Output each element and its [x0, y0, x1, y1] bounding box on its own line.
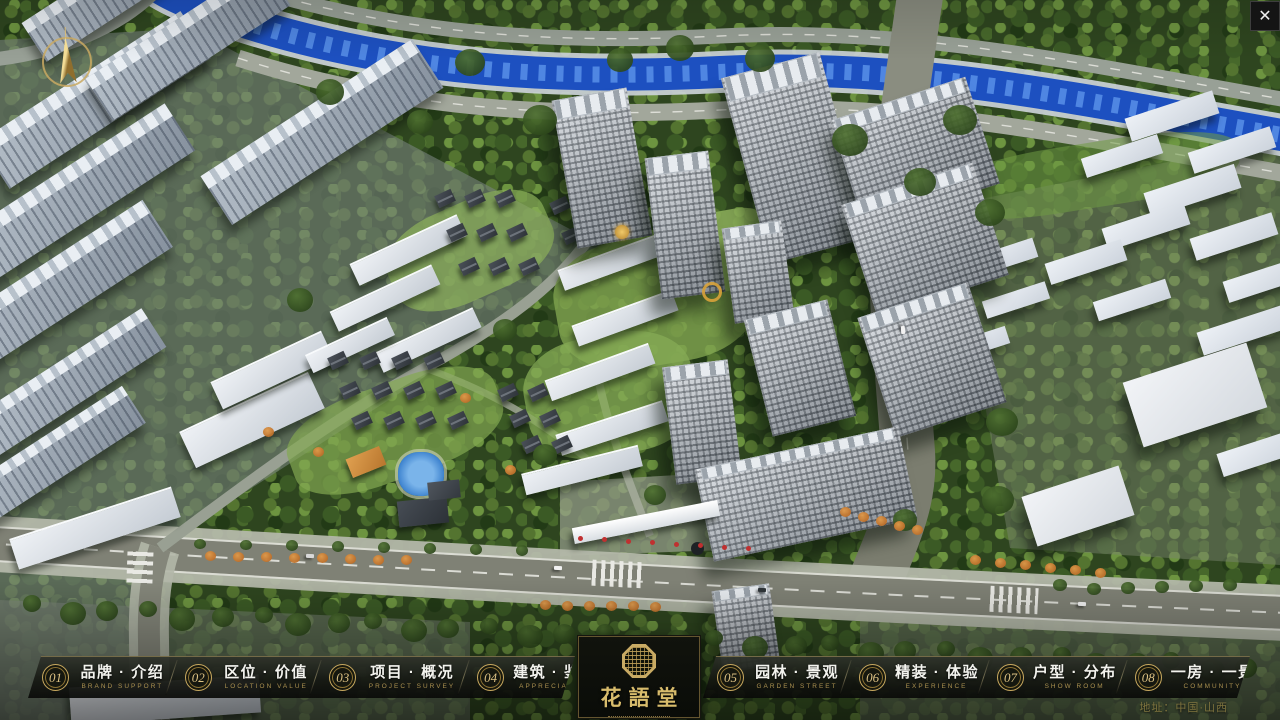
nav-label-garden: 园林 · 景观 [755, 664, 839, 681]
project-logo-panel[interactable]: 花語堂 [578, 636, 700, 718]
tb [785, 636, 807, 656]
detail [674, 542, 679, 547]
nav-badge-03: 03 [329, 664, 356, 691]
tb [205, 551, 216, 561]
tb [1223, 579, 1237, 592]
tb [970, 555, 981, 565]
detail [746, 546, 751, 551]
nav-badge-08: 08 [1135, 664, 1162, 691]
nav-badge-07: 07 [997, 664, 1024, 691]
car [306, 554, 314, 558]
tb [650, 602, 661, 612]
nav-badge-06: 06 [859, 664, 886, 691]
tb [584, 601, 595, 611]
nav-caption-brand: BRAND SUPPORT [82, 683, 164, 690]
nav-item-interior[interactable]: 06 精装 · 体验 EXPERIENCE [845, 657, 983, 698]
tb [424, 543, 436, 554]
nav-caption-room-view: COMMUNITY [1184, 683, 1242, 690]
tb [516, 545, 528, 556]
project-address: 地址：中国·山西 [1139, 699, 1228, 715]
detail [722, 545, 727, 550]
tb [666, 35, 694, 60]
tb [261, 552, 272, 562]
tb [505, 465, 516, 475]
compass-north-indicator [36, 31, 98, 93]
detail [578, 536, 583, 541]
tb [745, 45, 775, 72]
nav-label-floorplan: 户型 · 分布 [1033, 664, 1117, 681]
logo-caption-line [608, 716, 670, 717]
nav-num-06: 06 [866, 671, 879, 684]
nav-item-project[interactable]: 03 项目 · 概况 PROJECT SURVEY [315, 657, 463, 698]
detail [698, 543, 703, 548]
tb [523, 105, 557, 136]
tb [904, 168, 936, 197]
detail [702, 282, 722, 302]
tb [840, 507, 851, 517]
tb [1087, 583, 1101, 596]
tb [1095, 568, 1106, 578]
nav-label-brand: 品牌 · 介绍 [80, 664, 164, 681]
nav-num-07: 07 [1004, 671, 1017, 684]
tb [533, 444, 557, 466]
nav-caption-project: PROJECT SURVEY [369, 683, 455, 690]
nav-item-location[interactable]: 02 区位 · 价值 LOCATION VALUE [171, 657, 315, 698]
detail [427, 479, 461, 500]
tb [240, 540, 252, 551]
car [901, 326, 906, 334]
nav-num-08: 08 [1142, 671, 1155, 684]
detail [615, 225, 629, 239]
car [758, 588, 766, 592]
close-icon: ✕ [1258, 6, 1271, 26]
tb [328, 613, 350, 633]
tb [975, 199, 1005, 226]
xwalk [126, 549, 153, 584]
nav-item-room-view[interactable]: 08 一房 · 一景 COMMUNITY [1121, 657, 1259, 698]
nav-item-brand[interactable]: 01 品牌 · 介绍 BRAND SUPPORT [28, 657, 171, 698]
tb [562, 601, 573, 611]
nav-caption-garden: GARDEN STREET [757, 683, 838, 690]
nav-item-floorplan[interactable]: 07 户型 · 分布 SHOW ROOM [983, 657, 1121, 698]
tb [194, 539, 206, 550]
tb [894, 521, 905, 531]
nav-caption-floorplan: SHOW ROOM [1045, 683, 1105, 690]
nav-caption-interior: EXPERIENCE [906, 683, 968, 690]
nav-group-right: 05 园林 · 景观 GARDEN STREET 06 精装 · 体验 EXPE… [703, 656, 1250, 698]
car [1078, 602, 1086, 606]
xwalk [591, 560, 644, 589]
tb [470, 544, 482, 555]
nav-num-05: 05 [724, 671, 737, 684]
nav-label-project: 项目 · 概况 [370, 664, 454, 681]
nav-item-garden[interactable]: 05 园林 · 景观 GARDEN STREET [703, 657, 845, 698]
tb [313, 447, 324, 457]
tb [1020, 560, 1031, 570]
tb [644, 485, 666, 505]
tb [1121, 582, 1135, 595]
close-button[interactable]: ✕ [1250, 1, 1280, 31]
tb [606, 601, 617, 611]
logo-seal-icon [622, 644, 656, 678]
tb [401, 555, 412, 565]
tb [378, 542, 390, 553]
nav-num-04: 04 [484, 671, 497, 684]
tb [912, 525, 923, 535]
tb [1189, 580, 1203, 593]
nav-badge-04: 04 [477, 664, 504, 691]
tb [943, 105, 977, 136]
nav-num-03: 03 [336, 671, 349, 684]
nav-label-interior: 精装 · 体验 [895, 664, 979, 681]
tb [1070, 565, 1081, 575]
tb [1053, 579, 1067, 592]
nav-badge-02: 02 [185, 664, 212, 691]
tb [876, 516, 887, 526]
tb [233, 552, 244, 562]
nav-num-02: 02 [192, 671, 205, 684]
tb [345, 554, 356, 564]
tb [995, 558, 1006, 568]
nav-label-location: 区位 · 价值 [224, 664, 308, 681]
tb [96, 601, 118, 621]
detail [397, 496, 449, 527]
nav-badge-01: 01 [42, 664, 69, 691]
car [554, 566, 562, 570]
aerial-masterplan-viewport[interactable]: ✕ 01 品牌 · 介绍 BRAND SUPPORT 02 区位 · 价值 LO… [0, 0, 1280, 720]
tb [263, 427, 274, 437]
tb [628, 601, 639, 611]
tb [286, 540, 298, 551]
tb [982, 486, 1014, 515]
tb [316, 79, 344, 104]
tb [493, 319, 517, 341]
tb [858, 512, 869, 522]
detail [650, 540, 655, 545]
tb [332, 541, 344, 552]
xwalk [989, 586, 1038, 614]
nav-label-room-view: 一房 · 一景 [1171, 664, 1255, 681]
nav-num-01: 01 [49, 671, 62, 684]
project-logo-title: 花語堂 [601, 682, 685, 712]
detail [626, 539, 631, 544]
nav-caption-location: LOCATION VALUE [224, 683, 307, 690]
tb [553, 624, 575, 644]
tb [317, 553, 328, 563]
nav-badge-05: 05 [717, 664, 744, 691]
tb [373, 555, 384, 565]
tb [455, 49, 485, 76]
tb [1045, 563, 1056, 573]
logo-seal-pattern [625, 647, 653, 675]
tb [460, 393, 471, 403]
tb [437, 619, 459, 639]
nav-group-left: 01 品牌 · 介绍 BRAND SUPPORT 02 区位 · 价值 LOCA… [28, 656, 575, 698]
tb [212, 607, 234, 627]
tb [540, 600, 551, 610]
tb [289, 553, 300, 563]
tb [986, 408, 1018, 437]
tb [1155, 581, 1169, 594]
detail [602, 537, 607, 542]
